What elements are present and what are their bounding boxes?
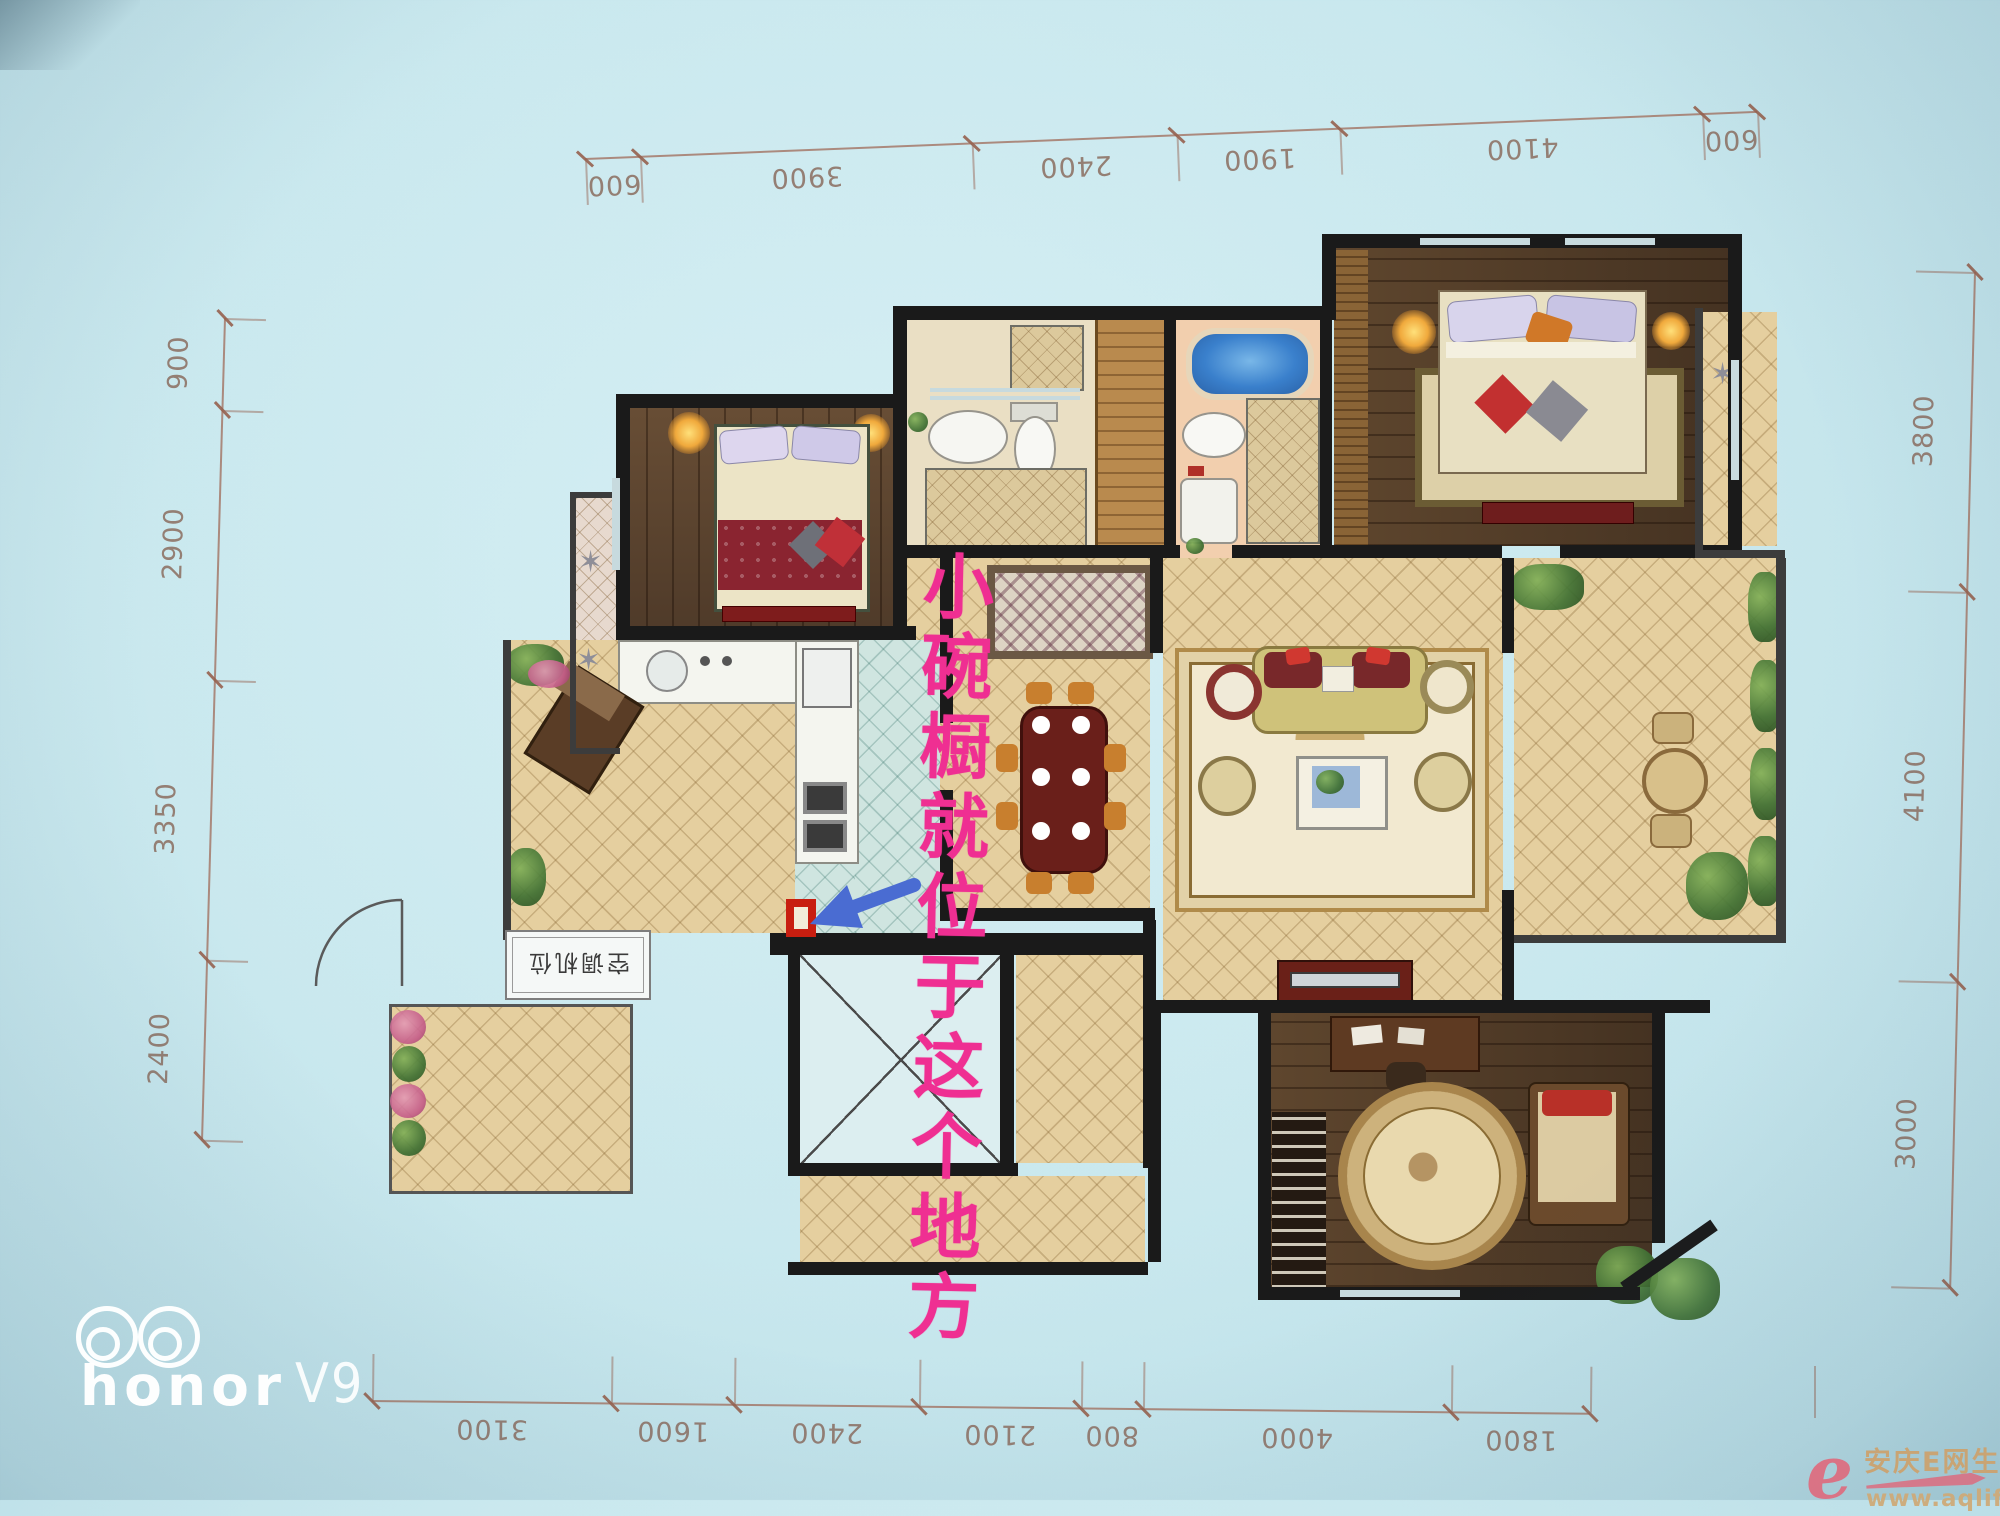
dimension-line <box>372 1400 1590 1415</box>
witness-line <box>223 410 263 413</box>
dining-chair <box>1068 682 1094 704</box>
fridge <box>802 648 852 708</box>
brand-watermark-text: honor <box>80 1354 286 1418</box>
wall <box>893 306 907 640</box>
rug-medallion <box>1398 1142 1448 1192</box>
witness-line <box>372 1354 374 1400</box>
sofa-pillow <box>1285 646 1311 665</box>
kitchen-sink <box>646 650 688 692</box>
dimension-value: 3350 <box>149 782 182 856</box>
witness-line <box>1451 1365 1453 1411</box>
wall <box>1000 955 1014 1170</box>
witness-line <box>216 680 256 683</box>
dining-chair <box>996 802 1018 830</box>
toilet <box>1182 412 1246 458</box>
dining-chair <box>1068 872 1094 894</box>
star-decor-icon: ✶ <box>578 548 603 578</box>
window <box>1731 360 1739 480</box>
plate <box>1032 822 1050 840</box>
flower-icon <box>528 660 570 688</box>
shower-area <box>925 468 1087 556</box>
shower-area <box>1246 398 1320 544</box>
balcony-chair <box>1652 712 1694 744</box>
tv <box>1290 972 1400 988</box>
photo-of-floorplan: { "annotation": { "note": "小碗橱就位于这个地方", … <box>0 0 2000 1500</box>
note-char: 个 <box>910 1107 983 1188</box>
wall <box>1514 935 1786 943</box>
dimension-line <box>201 318 226 1140</box>
shower-area-2 <box>1010 325 1084 391</box>
dining-chair <box>1104 802 1126 830</box>
door-arc <box>314 898 406 990</box>
wall <box>570 748 620 754</box>
dimension-value: 4100 <box>1899 749 1932 822</box>
plant-icon <box>908 412 928 432</box>
dimension-value: 2400 <box>1038 149 1112 183</box>
balcony-chair <box>1650 814 1692 848</box>
witness-line <box>972 145 975 189</box>
site-logo-icon: e <box>1806 1430 1853 1516</box>
window <box>612 478 620 570</box>
wall <box>1652 1013 1665 1243</box>
wall <box>616 394 906 408</box>
dimension-value: 1900 <box>1222 142 1296 176</box>
dimension-value: 800 <box>1084 1419 1139 1451</box>
dimension-value: 3900 <box>770 160 844 194</box>
note-char: 小 <box>922 547 995 628</box>
wall-lamp-icon <box>668 412 710 454</box>
window <box>930 388 1080 392</box>
master-wardrobe <box>1334 250 1368 546</box>
wall <box>1322 234 1336 320</box>
plant-icon <box>1512 564 1584 610</box>
wall <box>1776 558 1786 943</box>
dimension-line <box>1949 272 1976 1288</box>
wall <box>1148 1013 1161 1262</box>
dimension-value: 900 <box>162 335 195 390</box>
dining-table <box>1020 706 1108 874</box>
window <box>930 396 1080 400</box>
bed-sheet-fold <box>1446 342 1636 358</box>
dimension-value: 3000 <box>1891 1097 1924 1170</box>
dining-chair <box>1026 872 1052 894</box>
desk-paper <box>1397 1027 1424 1045</box>
dimension-value: 2100 <box>963 1418 1036 1450</box>
wall <box>1232 545 1502 558</box>
wall <box>1258 1013 1271 1300</box>
dimension-value: 3800 <box>1908 394 1941 467</box>
dimension-value: 2900 <box>157 507 190 581</box>
dimension-value: 4000 <box>1260 1421 1333 1453</box>
plant-icon <box>506 848 546 906</box>
sofa-pillow <box>1365 646 1391 665</box>
wall <box>1150 558 1163 653</box>
stove-knob <box>700 656 710 666</box>
plant-icon <box>1186 538 1204 554</box>
stove-knob <box>722 656 732 666</box>
dimension-value: 1800 <box>1484 1424 1557 1456</box>
bed-bench <box>1482 502 1634 524</box>
dimension-value: 1600 <box>636 1415 709 1447</box>
dining-chair <box>1104 744 1126 772</box>
wall <box>788 955 800 1170</box>
note-char: 碗 <box>921 627 994 708</box>
hall-runner-rug <box>987 565 1153 659</box>
nightstand-lamp-icon <box>1392 310 1436 354</box>
wall <box>1695 550 1785 558</box>
balcony-table <box>1642 748 1708 814</box>
plate <box>1072 822 1090 840</box>
dimension-value: 600 <box>1703 123 1759 156</box>
wall <box>1695 308 1703 558</box>
entry-tile <box>1016 955 1143 1163</box>
dimension-value: 3100 <box>455 1413 528 1445</box>
nightstand-lamp-icon <box>1652 312 1690 350</box>
model-watermark-text: V9 <box>295 1352 364 1415</box>
site-url-text: www.aqlife.com <box>1866 1486 2000 1512</box>
photo-corner-shadow <box>0 0 140 70</box>
armchair <box>1206 664 1262 720</box>
fixture-detail <box>1188 466 1204 476</box>
dimension-value: 600 <box>586 168 642 201</box>
witness-line <box>1814 1366 1816 1418</box>
note-char: 方 <box>907 1267 980 1348</box>
plant-icon <box>392 1046 426 1082</box>
plate <box>1072 768 1090 786</box>
dimension-chain-top: 6003900240019004100600 <box>585 111 1757 160</box>
wall <box>1164 320 1176 558</box>
stove-burner <box>803 820 847 852</box>
wall <box>1502 558 1514 653</box>
sofa-table <box>1322 666 1354 692</box>
witness-line <box>1143 1362 1145 1408</box>
kitchen-counter <box>618 640 798 704</box>
plant-icon <box>1316 770 1344 794</box>
wall <box>616 626 916 640</box>
side-chair <box>1414 752 1472 812</box>
window <box>1565 238 1655 245</box>
wall <box>1320 320 1332 558</box>
wall <box>1502 890 1514 1005</box>
pillow <box>719 425 790 465</box>
flower-icon <box>390 1010 426 1044</box>
dining-chair <box>1026 682 1052 704</box>
sink <box>928 410 1008 464</box>
plate <box>1032 768 1050 786</box>
ac-platform-box: 空调机位 <box>505 930 651 1000</box>
witness-line <box>611 1357 613 1403</box>
site-name-text: 安庆E网生活 <box>1864 1440 2000 1479</box>
note-char: 地 <box>909 1187 982 1268</box>
dimension-chain-left: 900290033502400 <box>201 318 226 1140</box>
side-chair <box>1198 756 1256 816</box>
annotation-arrow-icon <box>790 855 935 945</box>
note-char: 橱 <box>919 707 992 788</box>
dimension-value: 4100 <box>1485 131 1559 165</box>
dimension-value: 2400 <box>790 1416 863 1448</box>
wall <box>503 640 511 940</box>
witness-line <box>1908 590 1966 593</box>
note-char: 这 <box>912 1027 985 1108</box>
ac-platform-label: 空调机位 <box>526 948 630 982</box>
dimension-line <box>585 111 1757 160</box>
witness-line <box>1590 1367 1592 1413</box>
pillow <box>1542 1090 1612 1116</box>
witness-line <box>226 318 266 321</box>
bed-bench <box>722 606 856 622</box>
dining-chair <box>996 744 1018 772</box>
window <box>1340 1290 1460 1297</box>
witness-line <box>1899 980 1957 983</box>
dimension-value: 2400 <box>143 1012 176 1086</box>
witness-line <box>1891 1286 1949 1289</box>
wall <box>570 492 576 754</box>
witness-line <box>1916 271 1974 274</box>
vanity <box>1180 478 1238 544</box>
wall <box>893 306 1336 320</box>
note-char: 于 <box>914 947 987 1028</box>
flower-icon <box>390 1084 426 1118</box>
witness-line <box>734 1358 736 1404</box>
witness-line <box>203 1140 243 1143</box>
plate <box>1032 716 1050 734</box>
pillow <box>791 425 862 465</box>
witness-line <box>919 1360 921 1406</box>
wall <box>1150 1000 1710 1013</box>
armchair <box>1420 660 1474 714</box>
plant-icon <box>1686 852 1748 920</box>
window <box>1420 238 1530 245</box>
stove-burner <box>803 782 847 814</box>
desk-paper <box>1351 1024 1383 1045</box>
bathtub <box>1186 328 1314 400</box>
witness-line <box>1177 137 1180 181</box>
bookshelf <box>1272 1112 1326 1288</box>
witness-line <box>1339 131 1342 175</box>
plate <box>1072 716 1090 734</box>
witness-line <box>1081 1361 1083 1407</box>
witness-line <box>208 960 248 963</box>
bathroom-wood-deck <box>1095 320 1171 558</box>
dimension-chain-right: 380041003000 <box>1949 272 1976 1288</box>
plant-icon <box>392 1120 426 1156</box>
dimension-chain-bottom: 310016002400210080040001800 <box>372 1400 1590 1415</box>
